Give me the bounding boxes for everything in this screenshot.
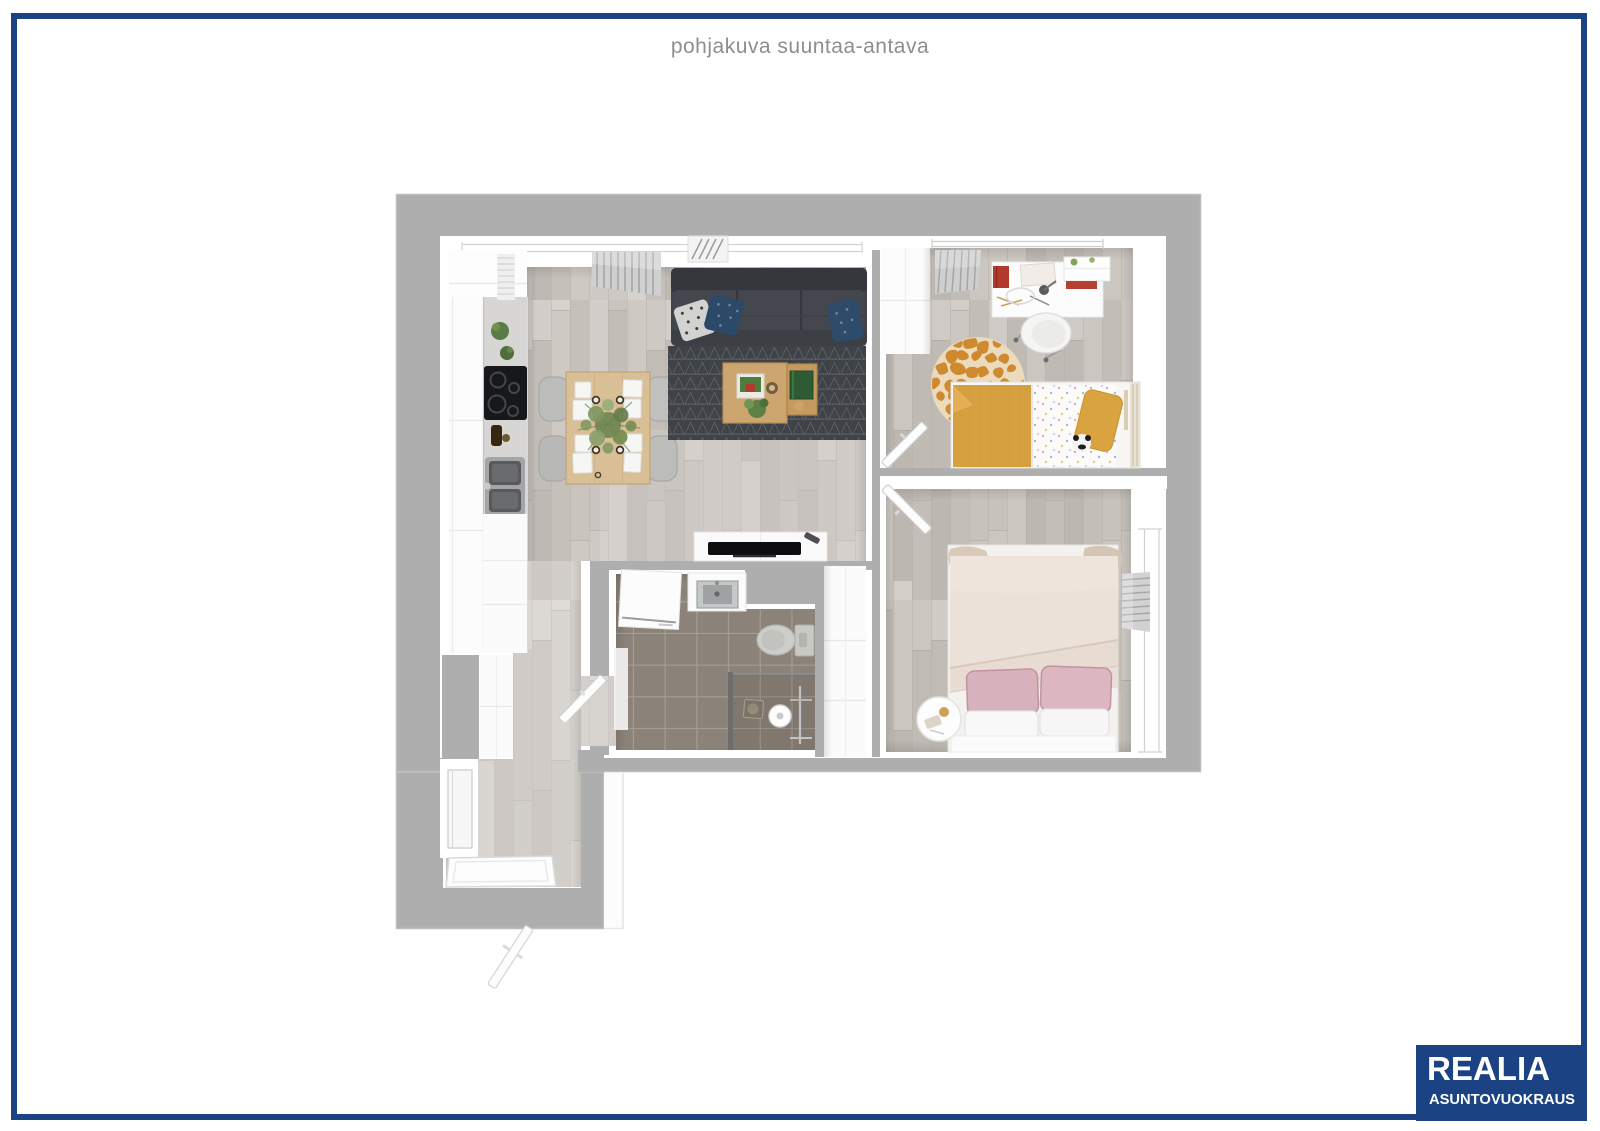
svg-text:ASUNTOVUOKRAUS: ASUNTOVUOKRAUS [1429,1091,1575,1108]
svg-text:pohjakuva suuntaa-antava: pohjakuva suuntaa-antava [671,35,929,58]
svg-text:REALIA: REALIA [1427,1051,1550,1088]
